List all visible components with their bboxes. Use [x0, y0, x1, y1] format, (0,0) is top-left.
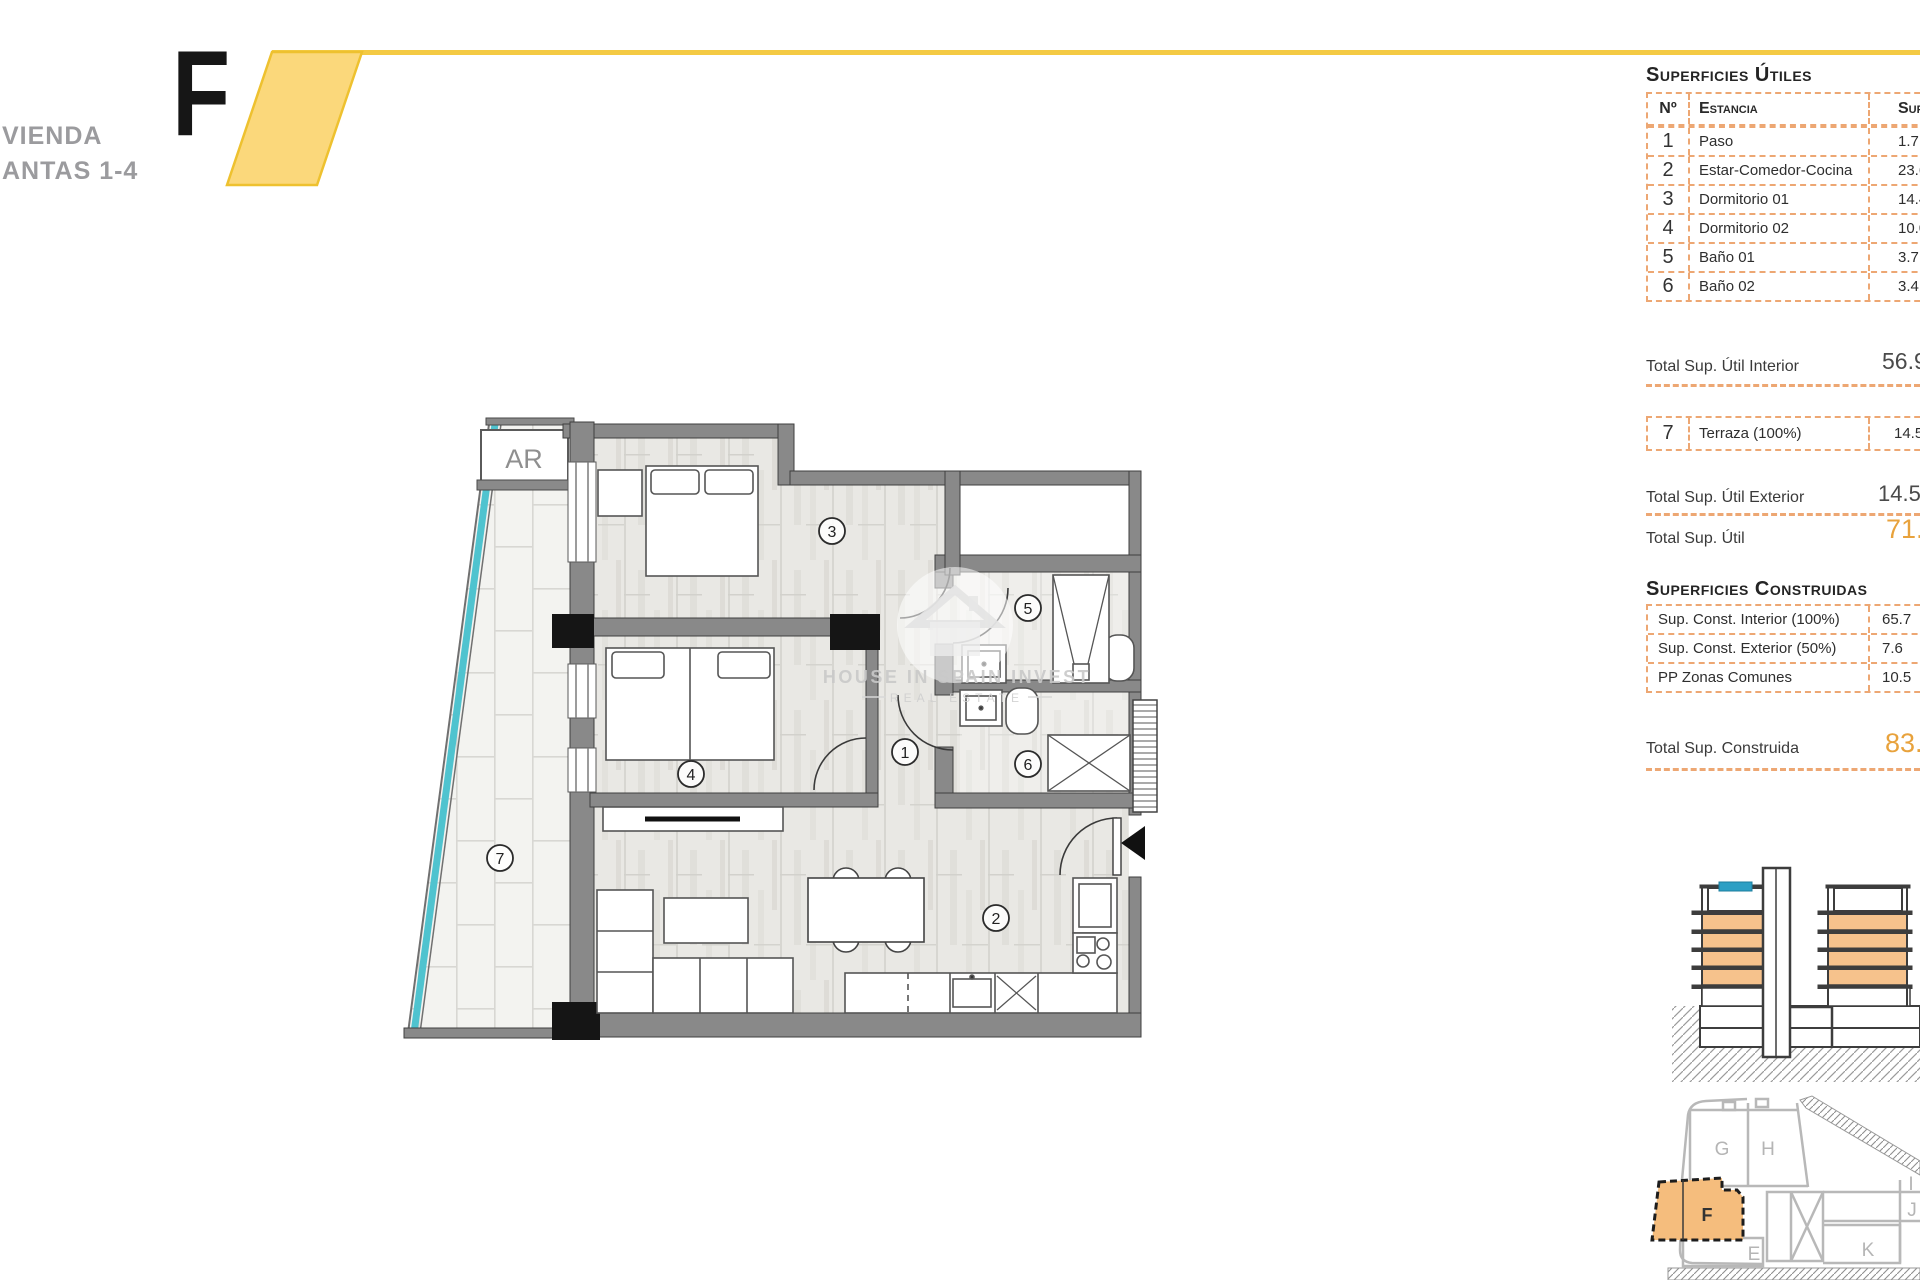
- exterior-strip: [960, 485, 1129, 550]
- svg-text:G: G: [1715, 1139, 1730, 1160]
- svg-text:I: I: [1908, 1174, 1913, 1195]
- col-header-estancia: Estancia: [1690, 100, 1868, 118]
- superficies-construidas-heading: Superficies Construidas: [1646, 578, 1867, 601]
- total-construida-value: 83.: [1885, 728, 1920, 759]
- total-construida-label: Total Sup. Construida: [1646, 740, 1799, 758]
- row-name: Terraza (100%): [1690, 425, 1868, 442]
- svg-text:3: 3: [828, 524, 837, 541]
- col-header-sup: Sup.: [1868, 94, 1920, 124]
- total-interior-label: Total Sup. Útil Interior: [1646, 358, 1799, 376]
- table-row: PP Zonas Comunes 10.5: [1648, 662, 1920, 691]
- row-value: 10.0: [1868, 215, 1920, 242]
- svg-text:4: 4: [687, 767, 696, 784]
- badge-bath1: 5: [1015, 595, 1041, 621]
- row-name: Sup. Const. Exterior (50%): [1648, 640, 1868, 657]
- watermark-title: HOUSE IN SPAIN INVEST: [823, 667, 1091, 687]
- badge-estar: 2: [983, 905, 1009, 931]
- row-name: Estar-Comedor-Cocina: [1690, 162, 1868, 179]
- badge-dorm2: 4: [678, 761, 704, 787]
- total-util-value: 71.: [1886, 514, 1920, 545]
- svg-text:6: 6: [1024, 757, 1033, 774]
- badge-paso: 1: [892, 739, 918, 765]
- total-exterior-label: Total Sup. Útil Exterior: [1646, 489, 1804, 507]
- floor-plan: AR: [404, 418, 1157, 1040]
- dining-set: [808, 868, 924, 952]
- row-value: 23.6: [1868, 157, 1920, 184]
- row-name: Dormitorio 01: [1690, 191, 1868, 208]
- row-number: 5: [1648, 244, 1690, 271]
- row-number: 2: [1648, 157, 1690, 184]
- row-name: Dormitorio 02: [1690, 220, 1868, 237]
- row-value: 10.5: [1868, 664, 1920, 691]
- divider: [1646, 513, 1920, 516]
- table-row: 2 Estar-Comedor-Cocina 23.6: [1648, 155, 1920, 184]
- svg-text:5: 5: [1024, 601, 1033, 618]
- building-section: [1672, 868, 1920, 1082]
- table-row: 1 Paso 1.7: [1648, 126, 1920, 155]
- svg-text:2: 2: [992, 911, 1001, 928]
- vent-shaft: [1133, 700, 1157, 812]
- row-value: 7.6: [1868, 635, 1920, 662]
- divider: [1646, 384, 1920, 387]
- storage-label: AR: [505, 444, 543, 474]
- row-value: 14.5: [1868, 418, 1920, 449]
- row-number: 4: [1648, 215, 1690, 242]
- table-row: 7 Terraza (100%) 14.5: [1648, 418, 1920, 449]
- total-interior-value: 56.9: [1882, 348, 1920, 375]
- total-util-label: Total Sup. Útil: [1646, 530, 1745, 548]
- row-name: PP Zonas Comunes: [1648, 669, 1868, 686]
- row-name: Sup. Const. Interior (100%): [1648, 611, 1868, 628]
- row-name: Baño 01: [1690, 249, 1868, 266]
- row-name: Paso: [1690, 133, 1868, 150]
- table-row: 6 Baño 02 3.4: [1648, 271, 1920, 300]
- site-unit-f-label: F: [1702, 1205, 1713, 1225]
- total-exterior-value: 14.5: [1878, 481, 1920, 507]
- site-key-plan: G H E K I J F: [1652, 1096, 1920, 1280]
- table-row: 3 Dormitorio 01 14.4: [1648, 184, 1920, 213]
- row-value: 65.7: [1868, 606, 1920, 633]
- badge-dorm1: 3: [819, 518, 845, 544]
- row-value: 3.7: [1868, 244, 1920, 271]
- svg-text:7: 7: [496, 851, 505, 868]
- row-name: Baño 02: [1690, 278, 1868, 295]
- table-row: 4 Dormitorio 02 10.0: [1648, 213, 1920, 242]
- badge-bath2: 6: [1015, 751, 1041, 777]
- svg-text:J: J: [1907, 1200, 1917, 1221]
- row-number: 3: [1648, 186, 1690, 213]
- superficies-construidas-table: Sup. Const. Interior (100%) 65.7 Sup. Co…: [1646, 604, 1920, 693]
- col-header-n: Nº: [1648, 94, 1690, 124]
- svg-text:E: E: [1748, 1244, 1761, 1265]
- storage-room: AR: [477, 430, 571, 490]
- badge-terraza: 7: [487, 845, 513, 871]
- superficies-utiles-heading: Superficies Útiles: [1646, 64, 1812, 87]
- watermark-subtitle: REAL ESTATE: [890, 691, 1024, 705]
- svg-text:K: K: [1862, 1240, 1875, 1261]
- terraza-row-box: 7 Terraza (100%) 14.5: [1646, 416, 1920, 451]
- row-value: 3.4: [1868, 273, 1920, 300]
- sheet-graphics: AR: [0, 0, 1920, 1280]
- table-header-row: Nº Estancia Sup.: [1648, 94, 1920, 126]
- row-number: 1: [1648, 128, 1690, 155]
- svg-text:1: 1: [901, 745, 910, 762]
- floorplan-sheet: { "header": { "title_line1": "VIENDA", "…: [0, 0, 1920, 1280]
- divider: [1646, 768, 1920, 771]
- site-unit-f: [1652, 1178, 1743, 1240]
- row-number: 6: [1648, 273, 1690, 300]
- row-value: 14.4: [1868, 186, 1920, 213]
- row-value: 1.7: [1868, 128, 1920, 155]
- table-row: Sup. Const. Interior (100%) 65.7: [1648, 606, 1920, 633]
- table-row: Sup. Const. Exterior (50%) 7.6: [1648, 633, 1920, 662]
- table-row: 5 Baño 01 3.7: [1648, 242, 1920, 271]
- svg-text:H: H: [1761, 1139, 1775, 1160]
- superficies-utiles-table: Nº Estancia Sup. 1 Paso 1.7 2 Estar-Come…: [1646, 92, 1920, 302]
- row-number: 7: [1648, 418, 1690, 449]
